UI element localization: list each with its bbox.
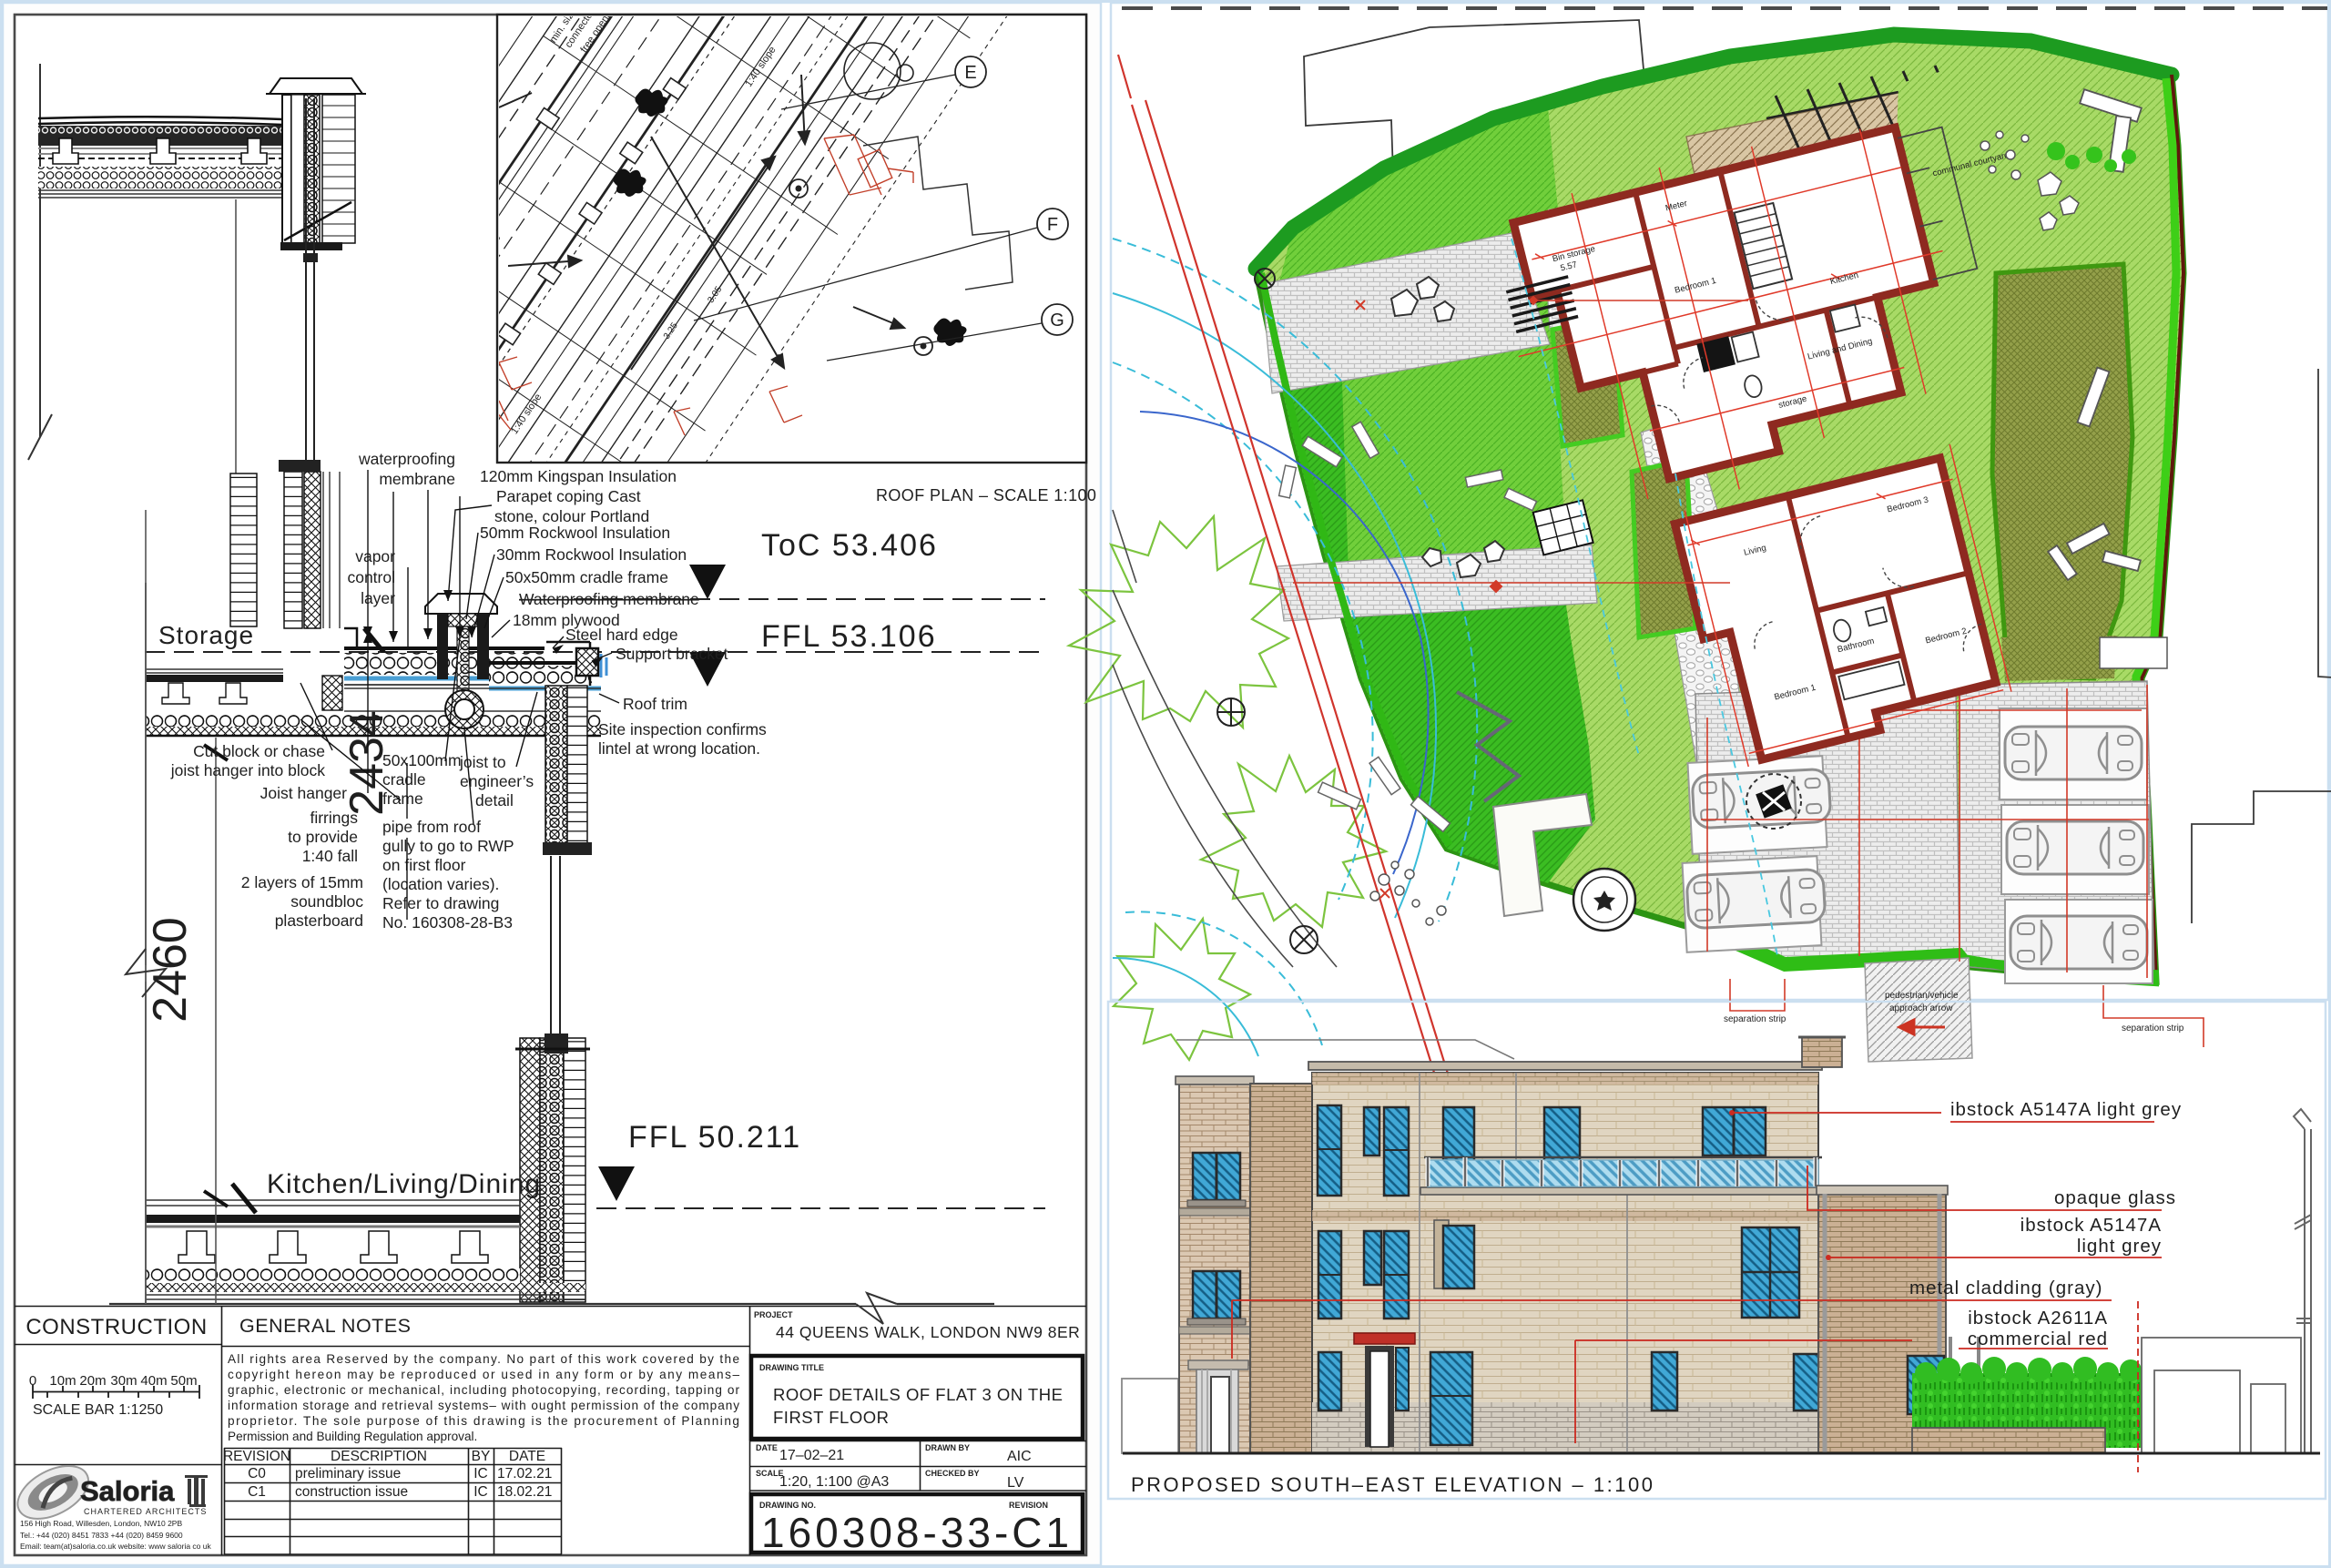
svg-text:2 layers of 15mm: 2 layers of 15mm <box>241 873 363 891</box>
svg-text:engineer’s: engineer’s <box>460 772 534 790</box>
svg-text:FFL 50.211: FFL 50.211 <box>628 1120 801 1155</box>
svg-text:cradle: cradle <box>382 770 426 789</box>
svg-text:C0: C0 <box>248 1466 266 1481</box>
svg-text:2460: 2460 <box>144 917 197 1023</box>
svg-text:44 QUEENS WALK, LONDON NW9 8ER: 44 QUEENS WALK, LONDON NW9 8ER <box>776 1323 1080 1341</box>
svg-text:IC: IC <box>473 1484 488 1500</box>
svg-text:CHARTERED ARCHITECTS: CHARTERED ARCHITECTS <box>84 1507 207 1516</box>
svg-text:membrane: membrane <box>379 470 455 488</box>
svg-text:Kitchen/Living/Dining: Kitchen/Living/Dining <box>267 1169 541 1199</box>
svg-text:17–02–21: 17–02–21 <box>779 1448 844 1463</box>
svg-text:17.02.21: 17.02.21 <box>497 1466 552 1481</box>
svg-text:light grey: light grey <box>2077 1236 2162 1257</box>
svg-text:Support bracket: Support bracket <box>616 645 728 663</box>
svg-text:No. 160308-28-B3: No. 160308-28-B3 <box>382 913 513 932</box>
svg-text:AIC: AIC <box>1007 1449 1032 1464</box>
svg-text:F: F <box>1047 215 1058 235</box>
svg-text:Cut block or chase: Cut block or chase <box>193 742 325 760</box>
svg-text:FFL 53.106: FFL 53.106 <box>761 619 937 654</box>
svg-text:layer: layer <box>361 589 395 607</box>
svg-text:opaque glass: opaque glass <box>2054 1187 2176 1208</box>
svg-text:FIRST FLOOR: FIRST FLOOR <box>773 1408 889 1427</box>
svg-text:approach arrow: approach arrow <box>1889 1003 1953 1013</box>
svg-text:to provide: to provide <box>288 828 358 846</box>
svg-text:SCALE BAR 1:1250: SCALE BAR 1:1250 <box>33 1402 163 1418</box>
svg-text:CONSTRUCTION: CONSTRUCTION <box>25 1315 207 1339</box>
svg-text:ibstock A5147A: ibstock A5147A <box>2021 1215 2162 1236</box>
svg-text:DRAWING TITLE: DRAWING TITLE <box>759 1363 824 1372</box>
svg-text:1:20, 1:100 @A3: 1:20, 1:100 @A3 <box>779 1474 889 1490</box>
svg-text:ROOF DETAILS OF FLAT 3 ON THE: ROOF DETAILS OF FLAT 3 ON THE <box>773 1385 1063 1404</box>
svg-text:156 High Road, Willesden, Lond: 156 High Road, Willesden, London, NW10 2… <box>20 1519 182 1528</box>
svg-text:GENERAL NOTES: GENERAL NOTES <box>239 1315 412 1337</box>
svg-text:50x100mm: 50x100mm <box>382 751 462 769</box>
svg-text:plasterboard: plasterboard <box>275 911 363 930</box>
svg-text:ROOF PLAN – SCALE 1:100: ROOF PLAN – SCALE 1:100 <box>876 486 1096 504</box>
svg-text:ToC 53.406: ToC 53.406 <box>761 528 938 563</box>
svg-text:E: E <box>964 63 976 83</box>
svg-text:30mm Rockwool Insulation: 30mm Rockwool Insulation <box>496 545 687 564</box>
svg-text:joist hanger into block: joist hanger into block <box>170 761 326 779</box>
svg-text:detail: detail <box>475 791 514 809</box>
svg-text:Joist hanger: Joist hanger <box>260 784 348 802</box>
svg-text:pipe from roof: pipe from roof <box>382 818 481 836</box>
svg-text:metal cladding (gray): metal cladding (gray) <box>1909 1278 2102 1298</box>
svg-text:REVISION: REVISION <box>223 1449 290 1464</box>
svg-text:50mm Rockwool Insulation: 50mm Rockwool Insulation <box>480 524 670 542</box>
svg-text:separation strip: separation strip <box>1724 1014 1786 1024</box>
svg-text:pedestrian/vehicle: pedestrian/vehicle <box>1885 991 1959 1001</box>
svg-text:Steel hard edge: Steel hard edge <box>565 626 678 644</box>
svg-text:joist to: joist to <box>459 753 506 771</box>
svg-text:commercial red: commercial red <box>1968 1329 2108 1349</box>
svg-text:information storage and retrie: information storage and retrieval system… <box>228 1399 739 1412</box>
svg-text:Tel.: +44 (020) 8451 7833 +44: Tel.: +44 (020) 8451 7833 +44 (020) 8459… <box>20 1531 183 1540</box>
svg-text:Permission and Building Regula: Permission and Building Regulation appro… <box>228 1430 477 1443</box>
svg-text:vapor: vapor <box>355 547 395 565</box>
svg-text:C1: C1 <box>248 1484 266 1500</box>
svg-text:Roof trim: Roof trim <box>623 695 687 713</box>
svg-text:firrings: firrings <box>310 809 358 827</box>
svg-text:Storage: Storage <box>158 621 254 649</box>
svg-text:Parapet coping Cast: Parapet coping Cast <box>496 487 641 505</box>
svg-text:120mm Kingspan Insulation: 120mm Kingspan Insulation <box>480 467 677 485</box>
svg-text:DESCRIPTION: DESCRIPTION <box>331 1449 427 1464</box>
svg-text:Refer to drawing: Refer to drawing <box>382 894 499 912</box>
svg-text:CHECKED BY: CHECKED BY <box>925 1469 980 1478</box>
svg-text:DATE: DATE <box>756 1443 778 1452</box>
svg-text:control: control <box>347 568 395 586</box>
svg-text:construction issue: construction issue <box>295 1484 408 1500</box>
svg-text:160308-33-C1: 160308-33-C1 <box>761 1509 1073 1556</box>
svg-text:(location varies).: (location varies). <box>382 875 499 893</box>
svg-text:PROPOSED SOUTH–EAST ELEVATION: PROPOSED SOUTH–EAST ELEVATION – 1:100 <box>1131 1473 1654 1496</box>
svg-text:preliminary issue: preliminary issue <box>295 1466 401 1481</box>
svg-text:soundbloc: soundbloc <box>290 892 363 911</box>
svg-text:Saloria: Saloria <box>80 1475 175 1507</box>
svg-text:Site inspection confirms: Site inspection confirms <box>598 720 767 738</box>
svg-text:copyright hereon may be reprod: copyright hereon may be reproduced or us… <box>228 1368 739 1381</box>
svg-text:18.02.21: 18.02.21 <box>497 1484 552 1500</box>
svg-text:on first floor: on first floor <box>382 856 466 874</box>
svg-text:Email: team(at)saloria.co.uk: Email: team(at)saloria.co.uk website: ww… <box>20 1542 211 1551</box>
svg-text:BY: BY <box>472 1449 491 1464</box>
svg-text:G: G <box>1050 311 1064 331</box>
svg-text:ibstock A5147A light grey: ibstock A5147A light grey <box>1950 1099 2182 1120</box>
svg-text:1:40 fall: 1:40 fall <box>302 847 358 865</box>
svg-text:waterproofing: waterproofing <box>358 450 455 468</box>
svg-text:DRAWN BY: DRAWN BY <box>925 1443 970 1452</box>
svg-text:PROJECT: PROJECT <box>754 1310 793 1319</box>
svg-text:Waterproofing membrane: Waterproofing membrane <box>519 590 699 608</box>
svg-text:lintel at wrong location.: lintel at wrong location. <box>598 739 760 758</box>
svg-text:50x50mm cradle frame: 50x50mm cradle frame <box>505 568 668 586</box>
svg-text:DATE: DATE <box>509 1449 545 1464</box>
svg-text:frame: frame <box>382 789 423 808</box>
svg-text:gully to go to RWP: gully to go to RWP <box>382 837 514 855</box>
svg-text:ibstock A2611A: ibstock A2611A <box>1968 1308 2108 1329</box>
svg-text:separation strip: separation strip <box>2122 1023 2184 1033</box>
svg-text:IC: IC <box>473 1466 488 1481</box>
svg-text:stone, colour Portland: stone, colour Portland <box>494 507 649 525</box>
svg-text:LV: LV <box>1007 1475 1024 1491</box>
svg-text:graphic, electronic or mechani: graphic, electronic or mechanical, inclu… <box>228 1383 739 1397</box>
